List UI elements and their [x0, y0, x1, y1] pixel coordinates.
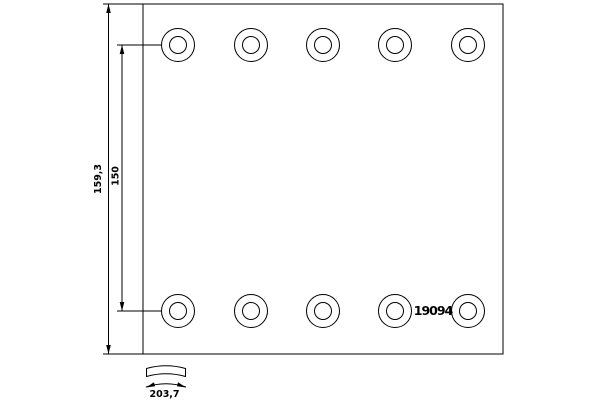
dimension-label-arc-width: 203,7	[149, 389, 179, 400]
arrowhead-down-icon	[106, 345, 111, 354]
arrowhead-up-icon	[106, 4, 111, 13]
arrowhead-down-icon	[120, 302, 125, 311]
part-number-label: 19094	[414, 303, 454, 318]
arc-section-symbol	[147, 366, 186, 377]
arrowhead-right-icon	[177, 382, 186, 387]
brake-lining-drawing-canvas: 159,3 150	[0, 0, 600, 400]
arrowhead-left-icon	[146, 382, 155, 387]
lining-outline	[143, 4, 503, 354]
brake-lining-drawing: 159,3 150	[0, 0, 600, 400]
arrowhead-up-icon	[120, 45, 125, 54]
dimension-label-hole-pitch: 150	[111, 166, 122, 186]
dimension-label-overall-height: 159,3	[93, 164, 104, 194]
